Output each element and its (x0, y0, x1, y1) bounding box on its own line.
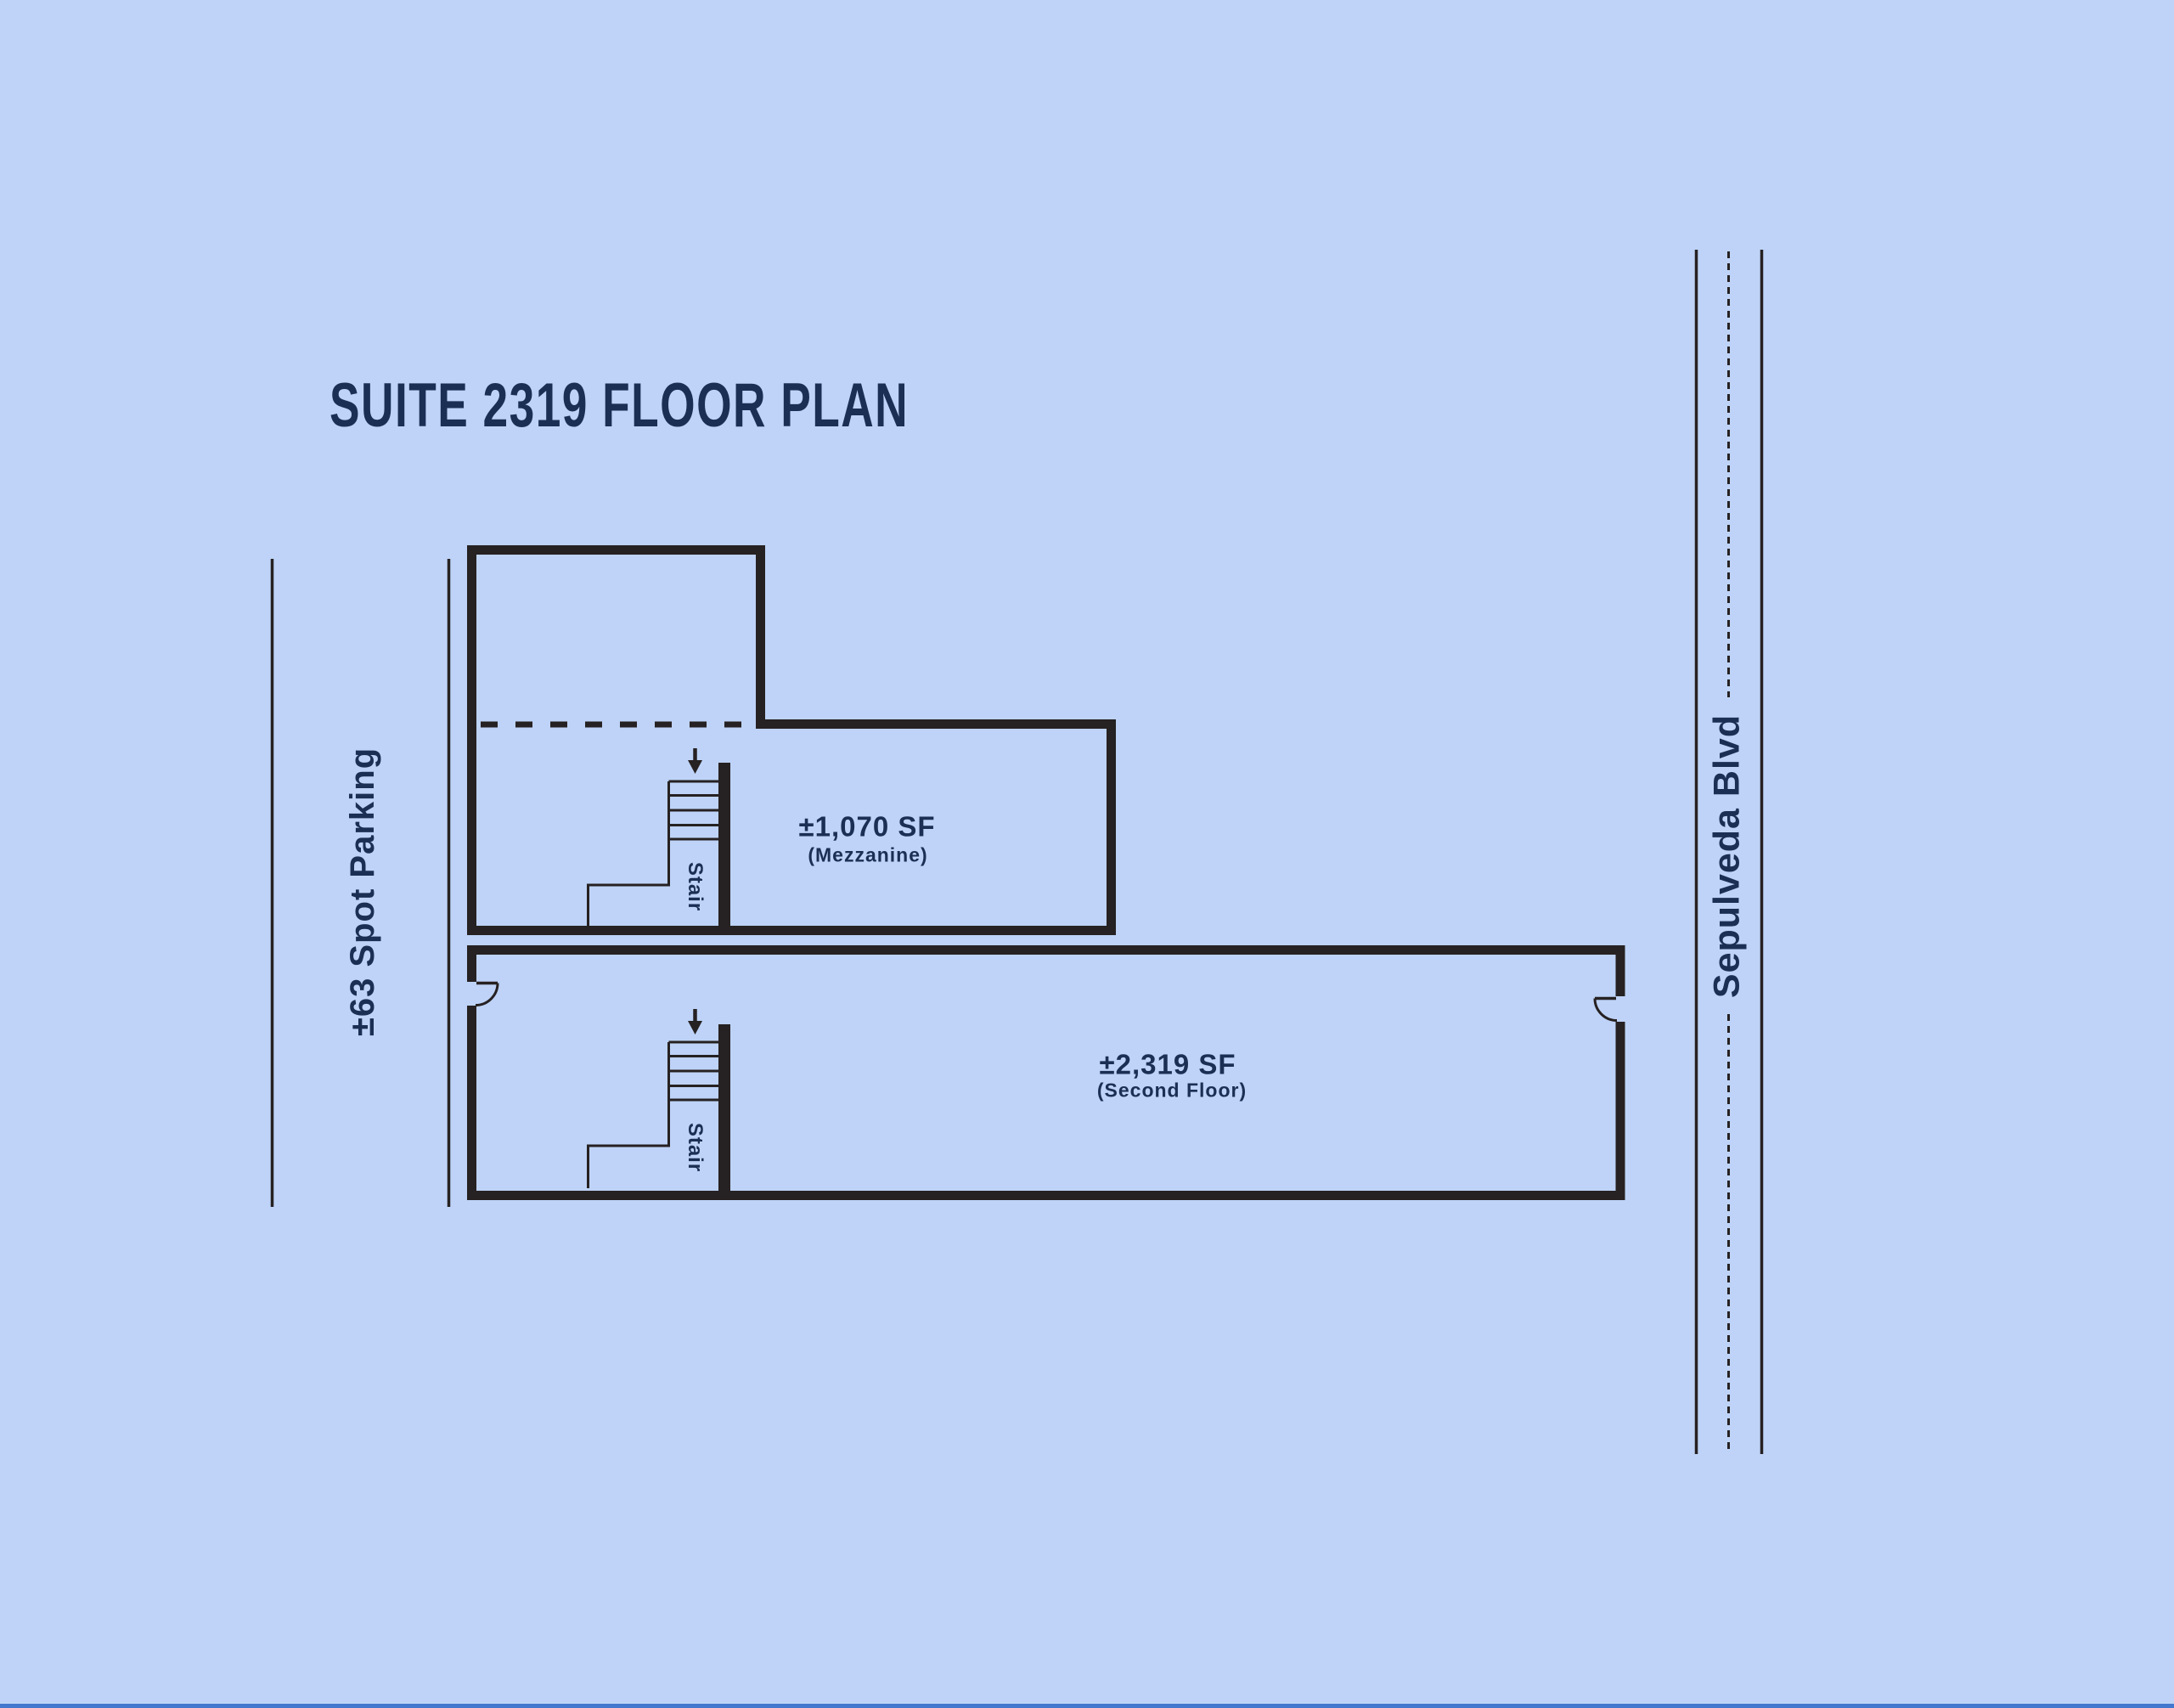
page-title: SUITE 2319 FLOOR PLAN (329, 375, 909, 437)
second-floor-floor-label: (Second Floor) (1097, 1081, 1247, 1101)
second-floor-stair-icon (589, 1009, 731, 1191)
street-name-label: Sepulveda Blvd (1709, 714, 1746, 998)
second-floor-stair-treads (669, 1042, 719, 1100)
mezzanine-area-label: ±1,070 SF (798, 813, 935, 841)
mezzanine-floor-label: (Mezzanine) (808, 846, 927, 865)
mezzanine-stair-icon (589, 748, 731, 927)
left-door-opening (465, 982, 478, 1006)
second-floor-stair-landing-outline (589, 1042, 669, 1188)
left-door-swing-icon (476, 984, 498, 1006)
mezzanine-stair-label: Stair (684, 862, 705, 911)
second-floor-stair-wall (718, 1024, 730, 1191)
parking-label: ±63 Spot Parking (346, 747, 380, 1036)
mezzanine-unit-outline (472, 550, 1112, 931)
second-floor-stair-label: Stair (684, 1123, 705, 1172)
right-door-opening (1613, 996, 1626, 1022)
image-bottom-edge-line (0, 1704, 2174, 1708)
second-floor-entry-arrow-icon (688, 1009, 702, 1034)
second-floor-unit-outline (472, 950, 1621, 1196)
mezzanine-stair-landing-outline (589, 781, 669, 927)
floor-plan-canvas: SUITE 2319 FLOOR PLAN ±63 Spot Parking S… (0, 0, 2174, 1708)
mezzanine-entry-arrow-icon (688, 748, 702, 774)
floor-plan-drawing (0, 0, 2174, 1708)
second-floor-area-label: ±2,319 SF (1099, 1051, 1236, 1079)
mezzanine-stair-treads (669, 781, 719, 839)
mezzanine-stair-wall (718, 763, 730, 927)
